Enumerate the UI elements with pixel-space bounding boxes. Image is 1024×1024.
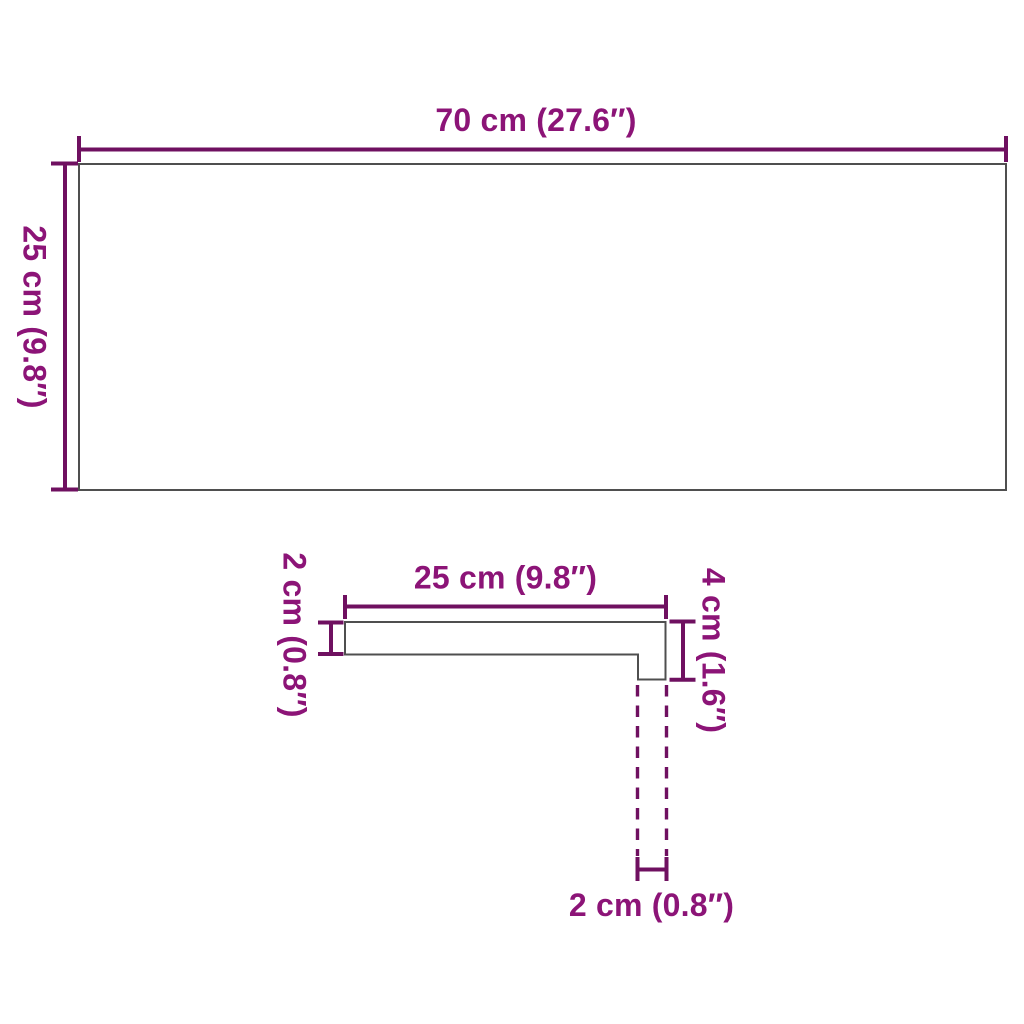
svg-text:70 cm (27.6″): 70 cm (27.6″) [435,102,636,138]
svg-text:2 cm (0.8″): 2 cm (0.8″) [569,887,734,923]
svg-text:25 cm (9.8″): 25 cm (9.8″) [414,560,597,596]
svg-text:2 cm (0.8″): 2 cm (0.8″) [277,552,313,717]
svg-text:4 cm (1.6″): 4 cm (1.6″) [696,568,732,733]
svg-text:25 cm (9.8″): 25 cm (9.8″) [17,225,53,408]
